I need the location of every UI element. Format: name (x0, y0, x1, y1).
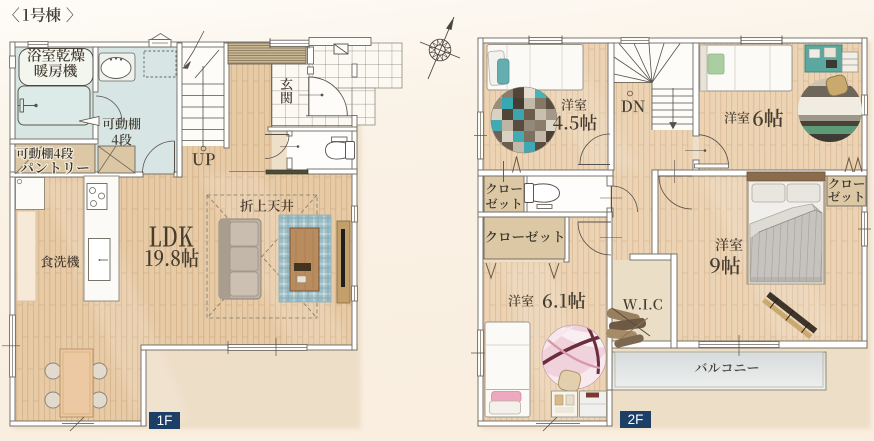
svg-text:1F: 1F (157, 413, 173, 428)
svg-text:2F: 2F (628, 412, 644, 427)
